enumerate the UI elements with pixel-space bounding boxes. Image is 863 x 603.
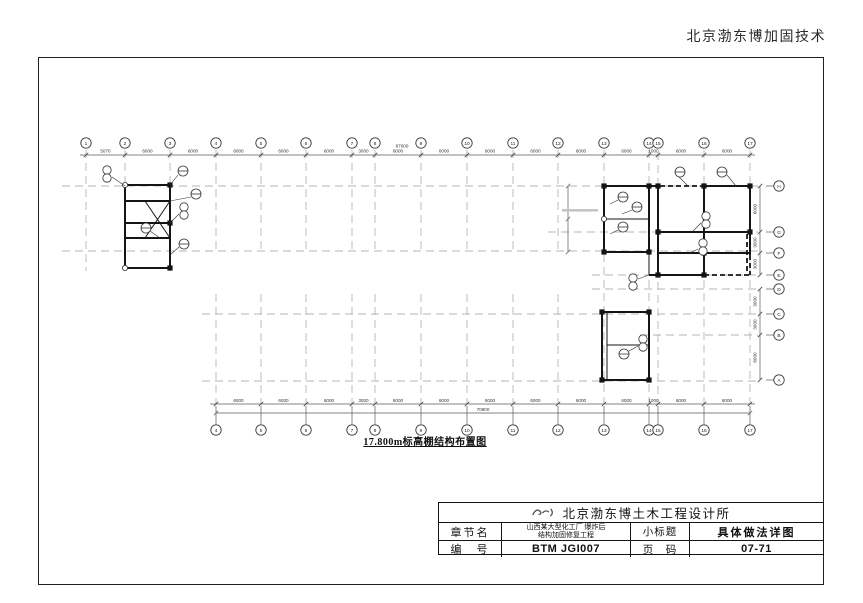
grid-bubble-label: 7: [351, 141, 354, 147]
grid-bubble-label: 10: [464, 141, 470, 147]
title-block-grid: 章节名 山西某大型化工厂 爆炸后 结构加固修复工程 小标题 具体做法详图 编 号…: [439, 523, 823, 557]
grid-bubble-label: H: [777, 184, 781, 190]
grid-bubble: 12: [553, 138, 563, 148]
illegible-annotation: [562, 209, 598, 212]
dimension-label: 6000: [753, 203, 758, 214]
grid-bubble-label: 12: [555, 141, 561, 147]
page-label: 页 码: [643, 542, 678, 557]
dimension-label: 6000: [324, 149, 335, 154]
dimension-label: 3000: [753, 319, 758, 330]
grid-bubble-label: 1: [85, 141, 88, 147]
grid-bubble: 11: [508, 425, 518, 435]
grid-bubble: 8: [370, 138, 380, 148]
company-name: 北京渤东博土木工程设计所: [562, 503, 730, 522]
grid-bubble: 4: [211, 425, 221, 435]
dimension-label: 6000: [576, 398, 587, 403]
dimension-label: 3000: [753, 258, 758, 269]
dimension-label: 6000: [439, 149, 450, 154]
title-block: 北京渤东博土木工程设计所 章节名 山西某大型化工厂 爆炸后 结构加固修复工程 小…: [438, 502, 824, 555]
dimension-label: 1000: [648, 398, 659, 403]
grid-bubble: 4: [211, 138, 221, 148]
grid-bubble: C: [774, 309, 784, 319]
grid-bubble: H: [774, 181, 784, 191]
grid-bubble: 13: [599, 425, 609, 435]
dimension-label: 6000: [676, 149, 687, 154]
dimension-label: 6000: [393, 398, 404, 403]
beam-lines-thin: [145, 201, 649, 380]
number-label: 编 号: [451, 541, 490, 557]
grid-bubble-label: 6: [305, 141, 308, 147]
grid-bubble: 15: [653, 138, 663, 148]
grid-bubble-label: 13: [601, 141, 607, 147]
grid-bubble: E: [774, 270, 784, 280]
design-institute-logo-icon: [531, 506, 555, 519]
dimension-label: 6000: [233, 398, 244, 403]
grid-bubble-label: 12: [555, 428, 561, 434]
grid-bubble: 1: [81, 138, 91, 148]
dimension-label: 1000: [648, 149, 659, 154]
grid-bubble-label: 15: [655, 141, 661, 147]
dimension-label: 6000: [485, 398, 496, 403]
grid-bubble: 9: [416, 138, 426, 148]
dimension-label: 6000: [676, 398, 687, 403]
grid-bubble-label: 2: [124, 141, 127, 147]
subtitle-value: 具体做法详图: [718, 524, 796, 540]
subtitle-label: 小标题: [643, 524, 678, 539]
axis-grid-lines: [62, 150, 758, 404]
grid-bubble: 13: [599, 138, 609, 148]
dimension-label: 6000: [722, 149, 733, 154]
dimension-label: 3000: [753, 237, 758, 248]
dimension-label: 70800: [477, 407, 490, 412]
grid-bubble: 17: [745, 425, 755, 435]
grid-bubble: 10: [462, 138, 472, 148]
grid-bubble: 2: [120, 138, 130, 148]
grid-bubble-label: 11: [511, 141, 516, 147]
grid-bubble-label: 6: [305, 428, 308, 434]
dimension-label: 6000: [142, 149, 153, 154]
chapter-label: 章节名: [451, 524, 490, 540]
grid-bubble-label: 3: [169, 141, 172, 147]
grid-bubble: 16: [699, 138, 709, 148]
grid-bubble-label: 4: [215, 428, 218, 434]
grid-bubble-label: 16: [701, 428, 707, 434]
grid-bubble: D: [774, 284, 784, 294]
dimension-label: 3000: [358, 149, 369, 154]
grid-bubble: G: [774, 227, 784, 237]
grid-bubble: 15: [653, 425, 663, 435]
grid-bubble-label: 16: [701, 141, 707, 147]
drawing-sheet-page: 北京渤东博加固技术: [0, 0, 863, 603]
chapter-value: 山西某大型化工厂 爆炸后 结构加固修复工程: [527, 524, 606, 539]
grid-bubble-label: G: [777, 230, 781, 236]
grid-bubble-label: 14: [646, 141, 652, 147]
grid-bubble-label: 15: [655, 428, 661, 434]
dimension-label: 6000: [722, 398, 733, 403]
grid-bubble: 6: [301, 138, 311, 148]
column-symbols: [167, 182, 752, 382]
grid-bubble-label: 5: [260, 141, 263, 147]
grid-bubble: 12: [553, 425, 563, 435]
dimension-label: 6000: [188, 149, 199, 154]
dimension-label: 6000: [530, 149, 541, 154]
dimension-label: 6000: [576, 149, 587, 154]
dimension-label: 6000: [278, 149, 289, 154]
dimension-label: 6000: [621, 398, 632, 403]
dimension-label: 6000: [278, 398, 289, 403]
detail-callout-icons: [103, 166, 736, 359]
grid-bubble-label: 5: [260, 428, 263, 434]
grid-bubble-label: 13: [601, 428, 607, 434]
dimension-label: 6000: [233, 149, 244, 154]
grid-bubble: F: [774, 248, 784, 258]
grid-bubble-label: 11: [511, 428, 516, 434]
dimension-label: 6000: [485, 149, 496, 154]
number-value: BTM JGI007: [532, 543, 600, 555]
grid-bubble-label: 17: [747, 141, 753, 147]
beam-lines: [125, 185, 750, 380]
grid-bubble: 3: [165, 138, 175, 148]
grid-bubble: 7: [347, 138, 357, 148]
grid-bubble-label: E: [777, 273, 780, 279]
dimension-label: 6000: [753, 352, 758, 363]
grid-bubble-label: D: [777, 287, 781, 293]
dimension-label: 5070: [100, 149, 111, 154]
grid-bubble: 5: [256, 138, 266, 148]
grid-bubble: 17: [745, 138, 755, 148]
grid-bubble-label: 8: [374, 141, 377, 147]
axis-annotations: 1234567891011121314151617507060006000600…: [81, 138, 784, 435]
dimension-label: 3000: [753, 296, 758, 307]
dimension-label: 87000: [396, 144, 409, 149]
grid-bubble-label: F: [778, 251, 781, 257]
dimension-label: 6000: [324, 398, 335, 403]
grid-bubble-label: 17: [747, 428, 753, 434]
grid-bubble-label: C: [777, 312, 781, 318]
title-block-company-row: 北京渤东博土木工程设计所: [439, 503, 823, 523]
grid-bubble: 6: [301, 425, 311, 435]
grid-bubble: A: [774, 375, 784, 385]
dimension-label: 3000: [358, 398, 369, 403]
grid-bubble-label: 9: [420, 141, 423, 147]
grid-bubble-label: 14: [646, 428, 652, 434]
dimension-label: 6000: [621, 149, 632, 154]
grid-bubble: 5: [256, 425, 266, 435]
grid-bubble-label: 4: [215, 141, 218, 147]
grid-bubble: 11: [508, 138, 518, 148]
drawing-title: 17.800m标高棚结构布置图: [345, 433, 505, 448]
dimension-label: 6000: [530, 398, 541, 403]
page-value: 07-71: [741, 543, 772, 555]
dimension-label: 6000: [439, 398, 450, 403]
grid-bubble-label: B: [777, 333, 780, 339]
grid-bubble: B: [774, 330, 784, 340]
dimension-label: 6000: [393, 149, 404, 154]
grid-bubble: 16: [699, 425, 709, 435]
